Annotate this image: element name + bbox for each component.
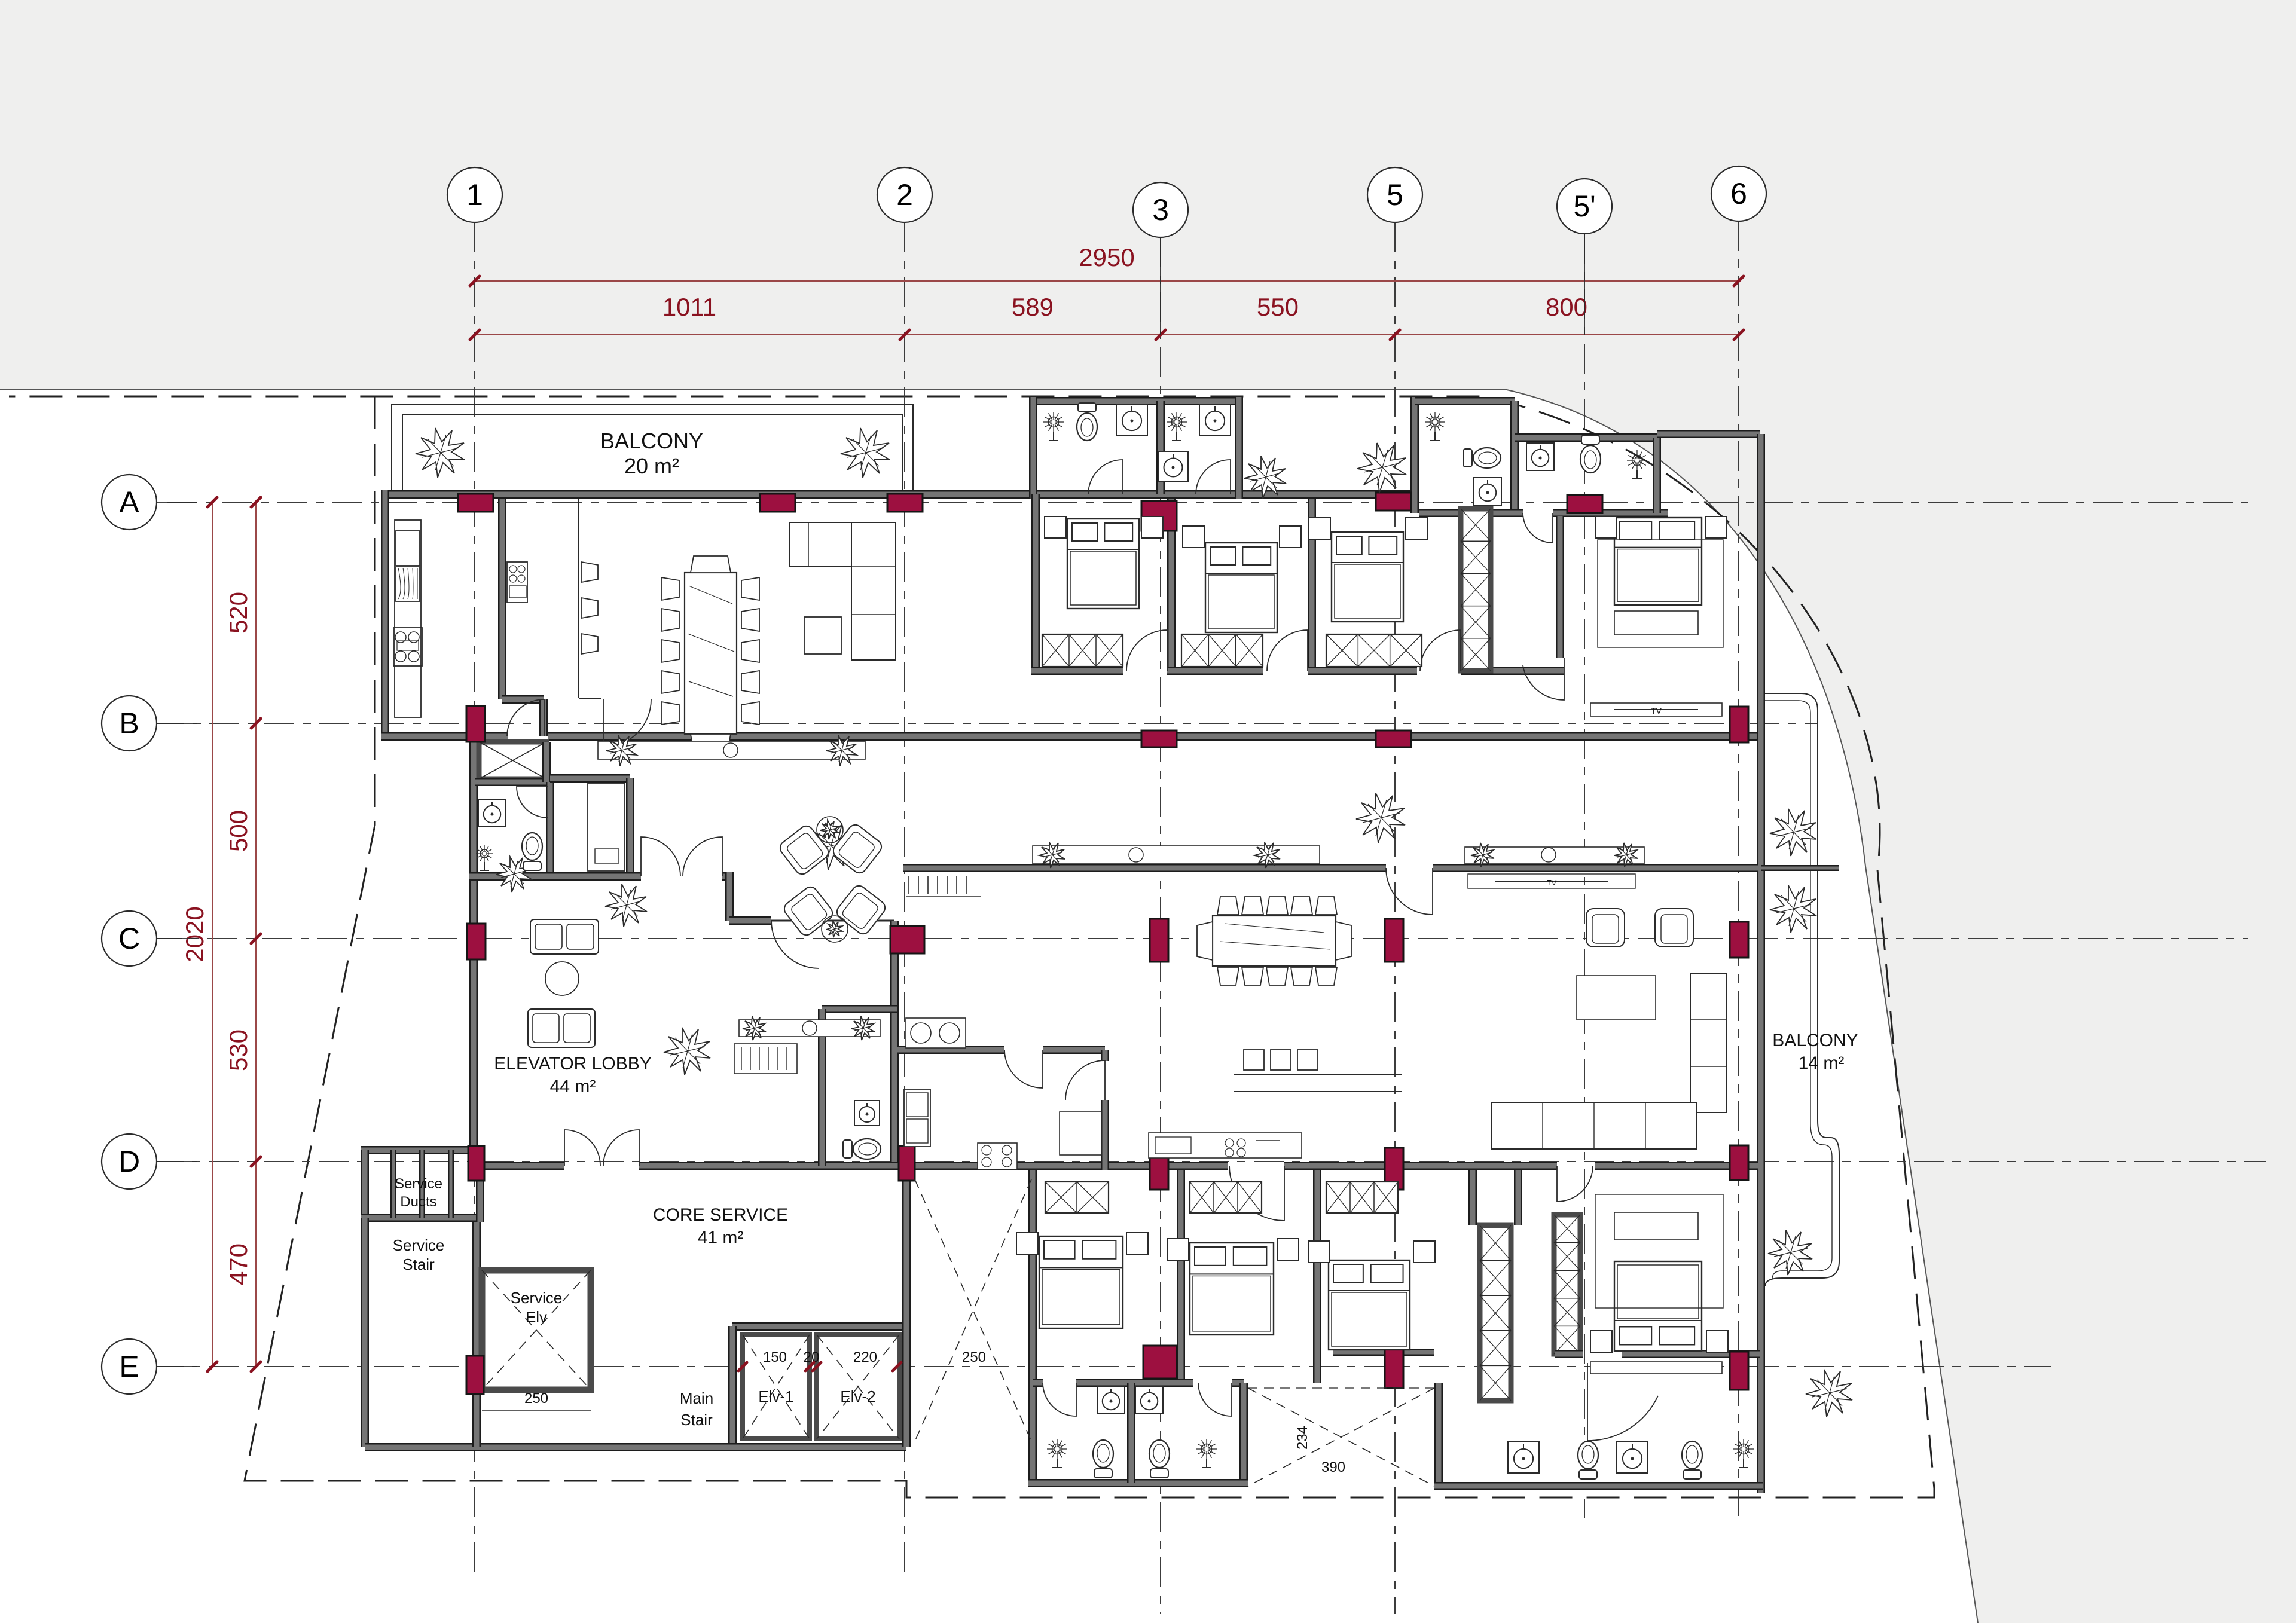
svg-text:44 m²: 44 m² [550,1077,596,1096]
svg-text:CORE SERVICE: CORE SERVICE [653,1205,788,1225]
svg-text:220: 220 [853,1349,877,1365]
svg-text:BALCONY: BALCONY [1772,1031,1858,1050]
svg-text:ELEVATOR LOBBY: ELEVATOR LOBBY [494,1054,651,1074]
svg-text:Service: Service [395,1176,442,1192]
svg-text:470: 470 [224,1243,252,1285]
svg-text:Elv: Elv [526,1308,547,1326]
svg-text:520: 520 [224,592,252,634]
svg-text:2: 2 [896,178,913,212]
svg-text:5': 5' [1573,189,1595,223]
svg-text:D: D [118,1145,140,1178]
svg-text:800: 800 [1546,293,1587,321]
svg-text:14 m²: 14 m² [1799,1053,1845,1073]
svg-text:Elv-1: Elv-1 [758,1387,793,1405]
svg-text:Stair: Stair [402,1255,435,1273]
svg-text:TV: TV [1651,706,1662,716]
svg-text:589: 589 [1012,293,1054,321]
svg-text:550: 550 [1257,293,1299,321]
svg-text:234: 234 [1294,1426,1311,1450]
svg-text:3: 3 [1152,193,1169,227]
svg-text:Main: Main [680,1389,713,1407]
svg-text:Ducts: Ducts [400,1194,436,1210]
svg-text:C: C [118,922,140,955]
svg-text:E: E [119,1350,139,1383]
svg-text:1: 1 [466,178,483,212]
svg-text:B: B [119,707,139,740]
svg-text:390: 390 [1321,1459,1345,1475]
svg-text:250: 250 [524,1390,548,1407]
svg-text:250: 250 [962,1349,986,1365]
svg-text:2020: 2020 [181,906,209,962]
svg-text:A: A [119,485,139,519]
svg-text:Service: Service [393,1236,445,1254]
svg-text:6: 6 [1730,177,1747,210]
svg-text:Service: Service [511,1289,563,1307]
svg-text:530: 530 [224,1029,252,1071]
svg-text:1011: 1011 [662,293,716,321]
svg-text:BALCONY: BALCONY [600,429,703,453]
svg-text:TV: TV [1547,878,1557,887]
svg-text:Elv-2: Elv-2 [840,1387,875,1405]
svg-text:5: 5 [1387,178,1403,212]
svg-text:41 m²: 41 m² [698,1228,744,1248]
svg-text:150: 150 [763,1349,787,1365]
svg-text:Stair: Stair [680,1411,713,1429]
svg-text:500: 500 [224,810,252,852]
svg-text:20 m²: 20 m² [624,454,679,478]
svg-text:2950: 2950 [1079,243,1134,271]
